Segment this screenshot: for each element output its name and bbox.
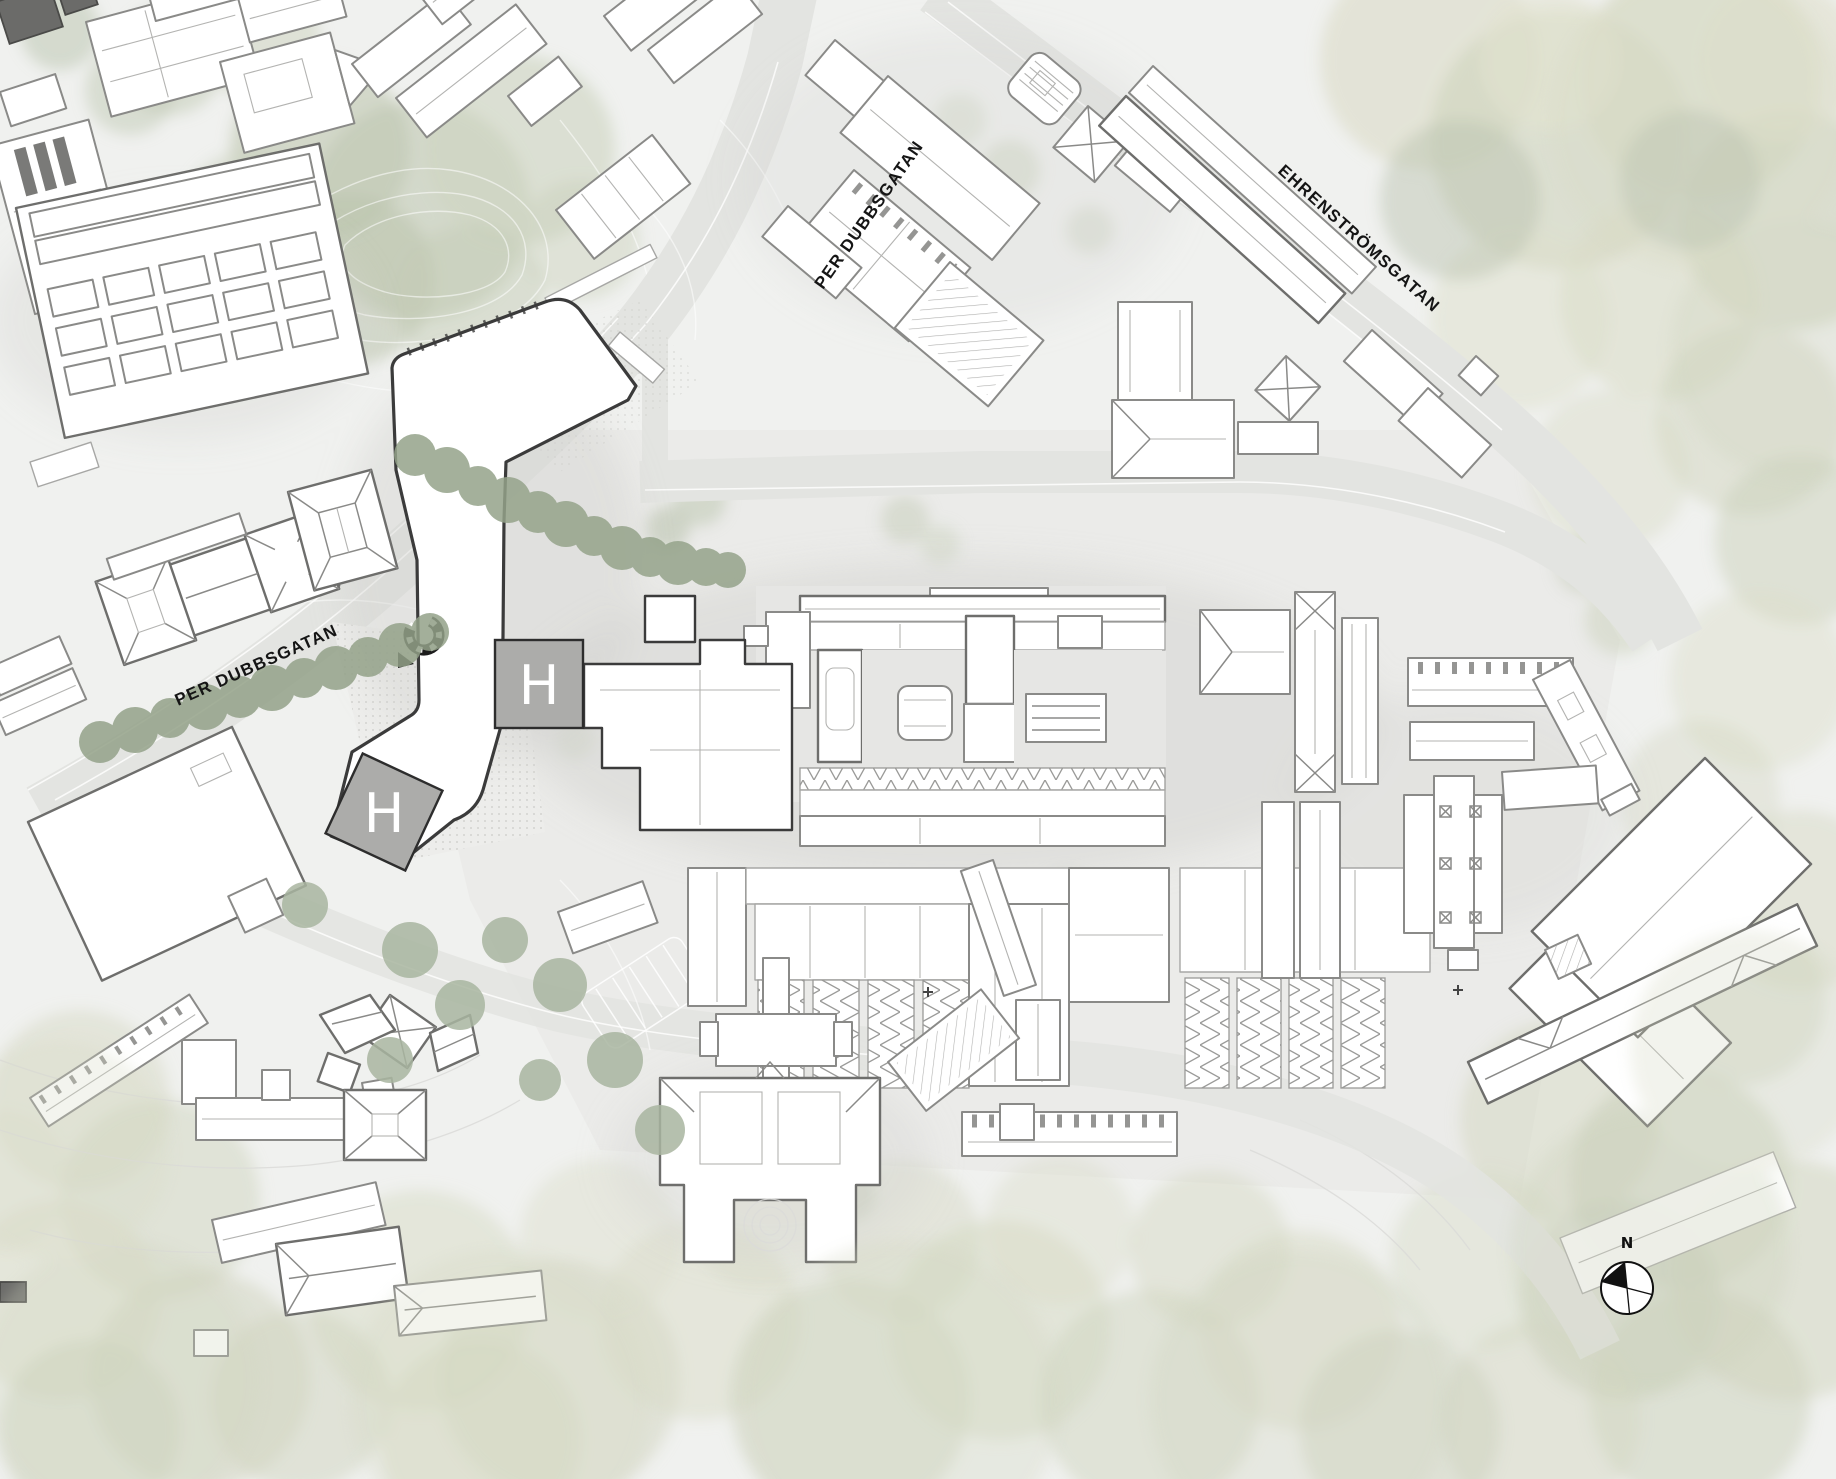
- helipad-letter: H: [364, 782, 405, 845]
- site-plan-svg: H H: [0, 0, 1836, 1479]
- site-plan-map: H H: [0, 0, 1836, 1479]
- compass-north-label: N: [1621, 1234, 1634, 1252]
- helipad-h-marker-1: H: [495, 640, 583, 728]
- helipad-letter: H: [519, 654, 560, 717]
- sawtooth-roof-band: [800, 768, 1165, 790]
